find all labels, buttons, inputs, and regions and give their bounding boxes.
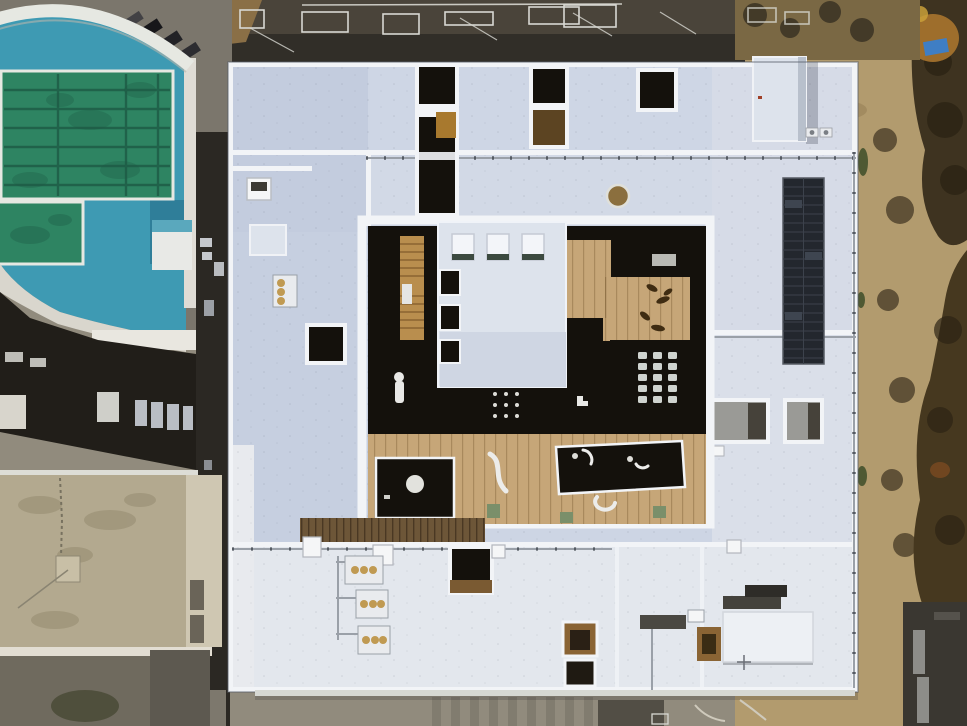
wooden-stair [400, 236, 424, 340]
courtyard-vent-box [652, 254, 676, 266]
skylight-pyramids [452, 234, 544, 260]
slatted-roof-strip [300, 518, 485, 542]
field-shadow-band [196, 34, 745, 62]
lightwell-c [638, 70, 676, 110]
small-white-roof [0, 395, 26, 429]
penthouse-detail [758, 96, 762, 99]
aerial-photo-canvas [0, 0, 967, 726]
parapet-line-1 [0, 470, 198, 475]
tan-roof-box [56, 556, 80, 582]
pool-complex [0, 11, 196, 352]
rust-foliage [930, 462, 950, 478]
se-building-roof [903, 602, 967, 726]
skylight-block [438, 222, 566, 387]
skylight-grid [610, 340, 690, 412]
neighbor-buildings-southwest [0, 292, 222, 726]
inner-courtyard [362, 220, 710, 524]
main-building-roof [228, 57, 858, 692]
se-building-detail [934, 612, 960, 620]
aerial-photo [0, 0, 967, 726]
block-side-openings [440, 270, 460, 363]
sports-ground-north [196, 0, 920, 62]
bottom-left-roof-2 [150, 650, 210, 726]
court-1 [712, 400, 768, 442]
dark-building-southeast [903, 602, 967, 726]
se-building-panel-1 [913, 630, 925, 674]
pool-roof-east-band [184, 58, 196, 308]
se-building-panel-2 [917, 677, 929, 723]
building-south-face [255, 690, 855, 696]
bottom-left-vegetation [51, 690, 119, 722]
se-wood-openings [563, 622, 597, 686]
ground-dark-patch [598, 700, 664, 726]
west-wing-opening [307, 325, 345, 363]
lightwell-b [531, 67, 567, 147]
deck-glass-panel-left [376, 458, 454, 518]
roof-vent-circle [607, 185, 629, 207]
stairwell-slats [450, 580, 492, 593]
ground-rib-shadows [432, 697, 593, 726]
deck-glass-panel-right [556, 441, 685, 494]
pool-deck-building-top [152, 220, 192, 232]
nw-hvac-unit [273, 275, 297, 307]
solar-panel-array [783, 178, 824, 364]
nw-skylight-glass [251, 182, 267, 191]
lightwell-a [417, 65, 457, 215]
penthouse-east-shade [798, 57, 806, 141]
nw-small-penthouse [250, 225, 286, 255]
court-2 [785, 400, 822, 442]
